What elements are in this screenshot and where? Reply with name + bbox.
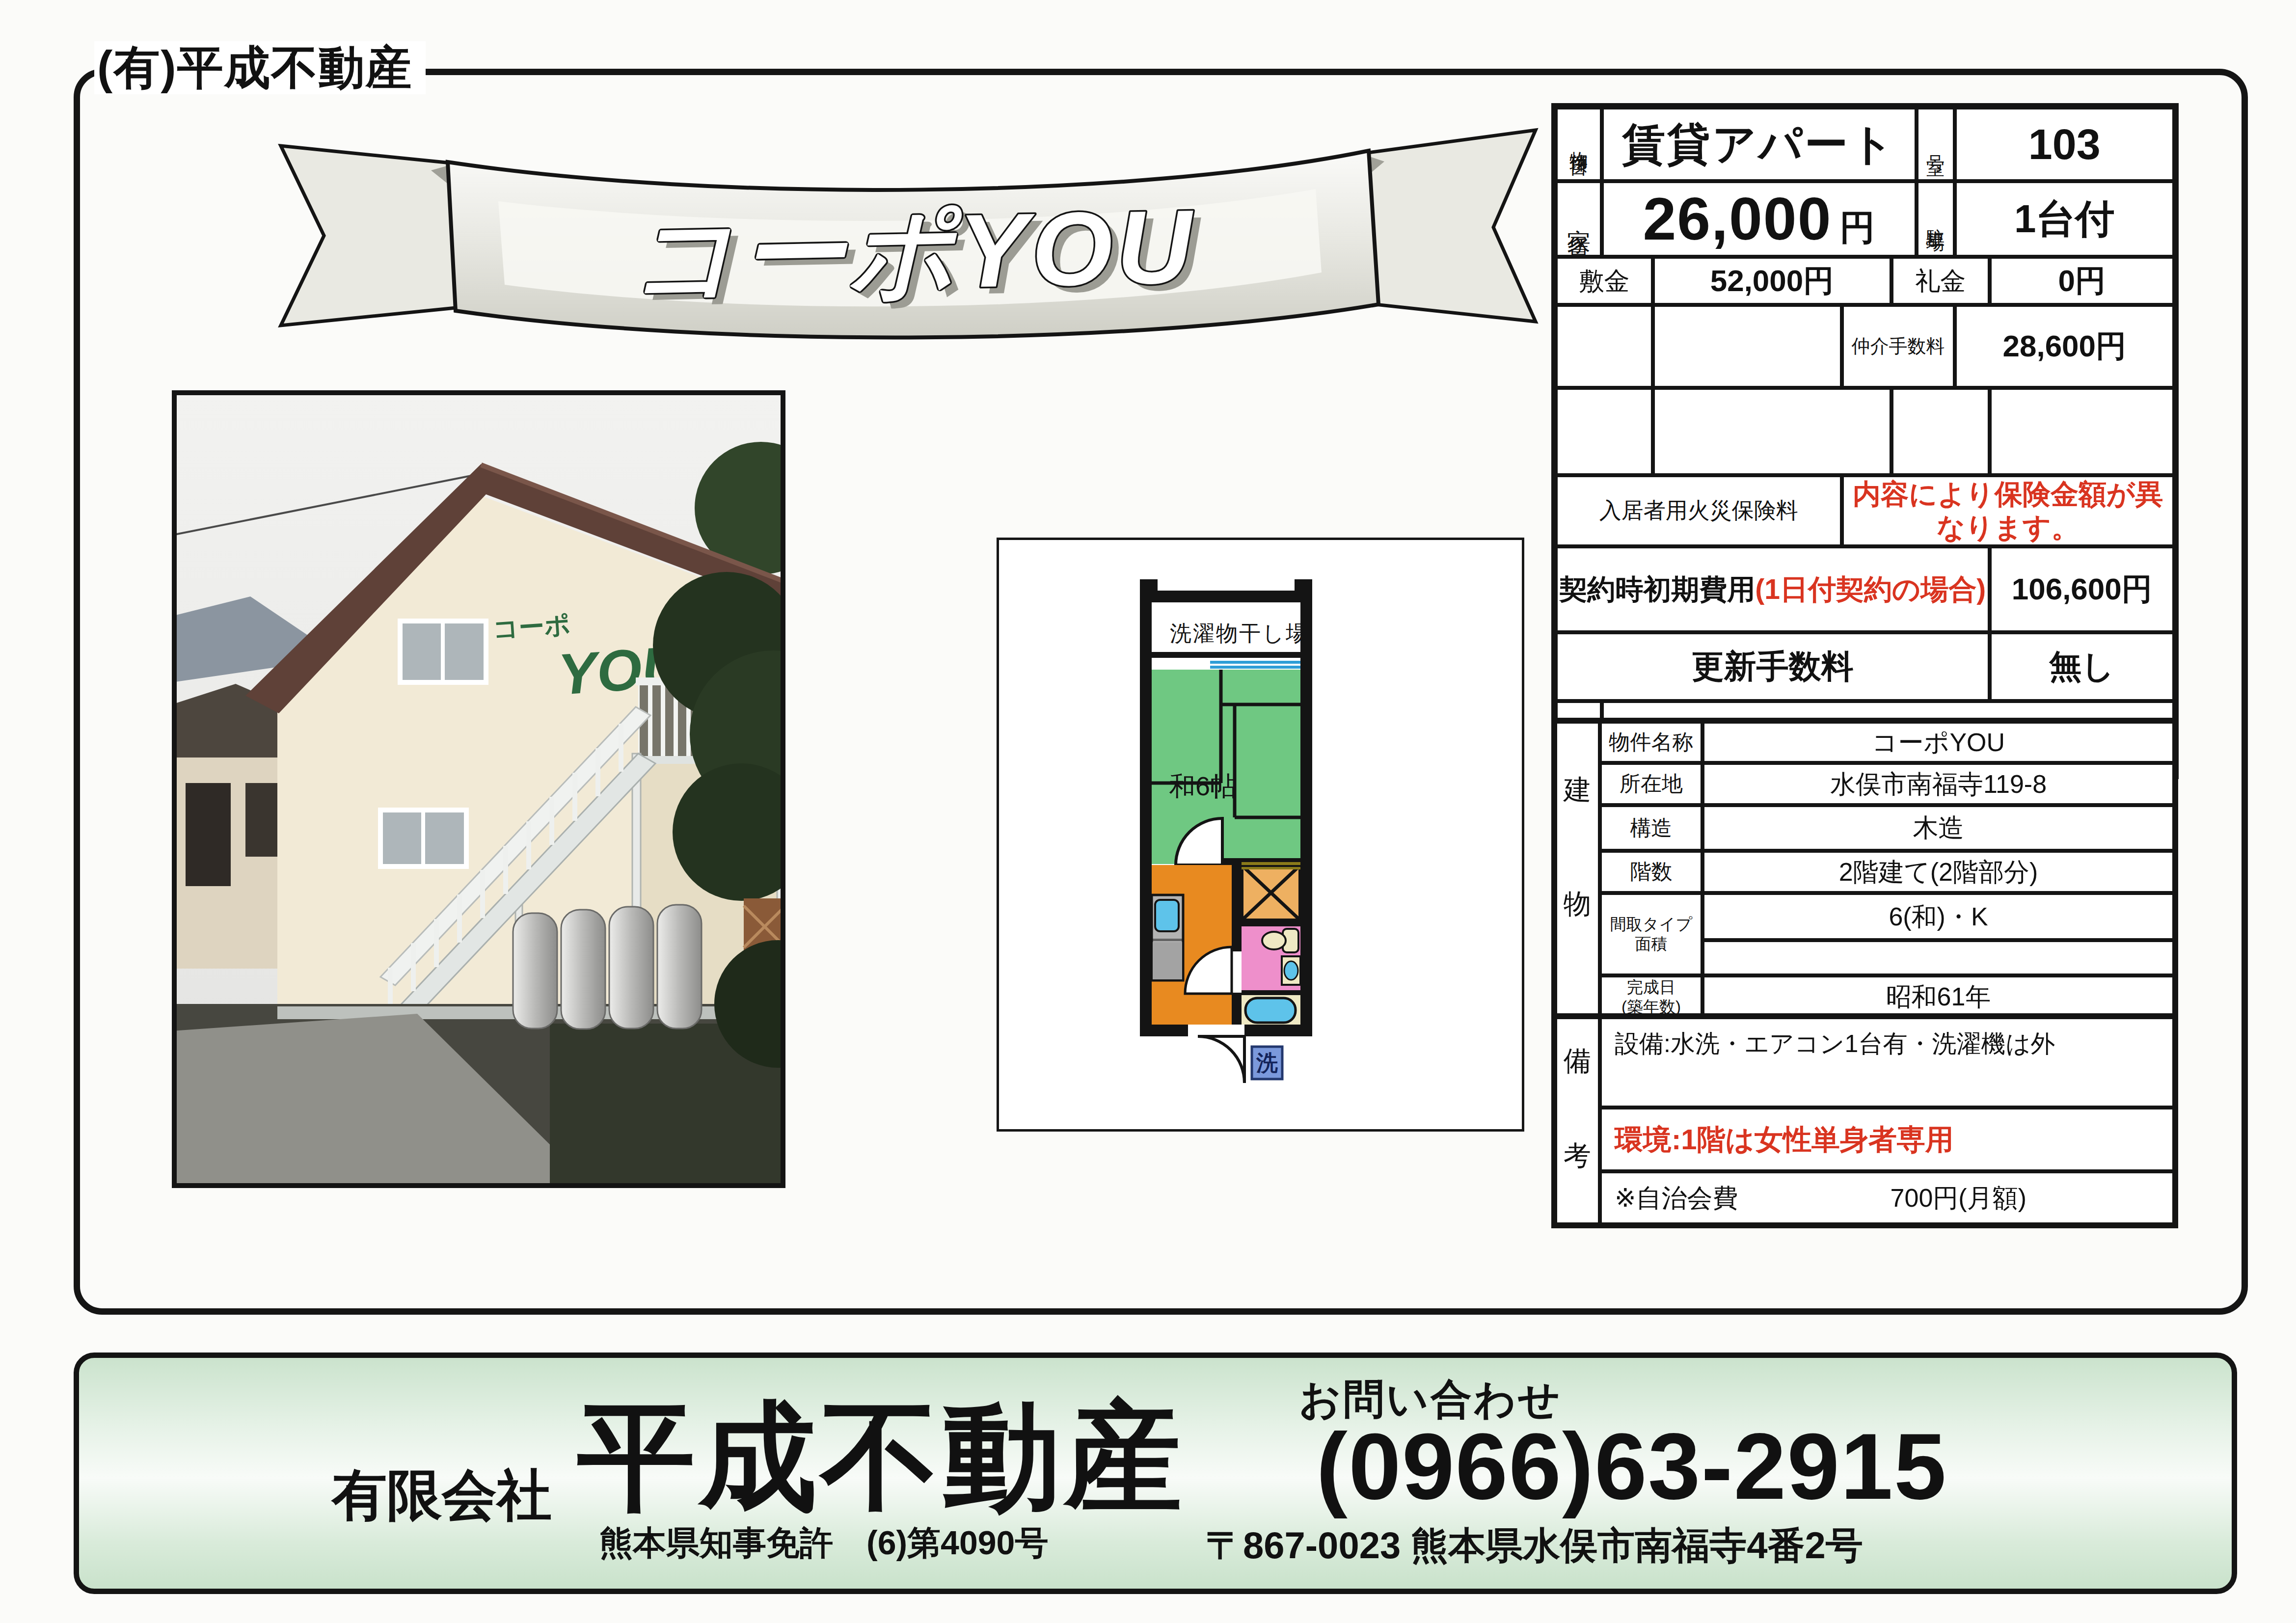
renewal-fee-label: 更新手数料 (1555, 632, 1990, 701)
ribbon-right-tail (1361, 130, 1536, 322)
room-no-label: 号室 (1926, 141, 1945, 147)
parking-label-cell: 駐車場 (1917, 181, 1955, 257)
empty-cell (1702, 940, 2175, 975)
parking-label: 駐車場 (1926, 214, 1945, 222)
building-row-value: 2階建て(2階部分) (1702, 851, 2175, 893)
title-ribbon: コーポYOU コーポYOU (275, 115, 1541, 349)
layout-label: 間取タイプ (1602, 915, 1701, 934)
item-label-cell: 物件項目 (1555, 107, 1602, 181)
building-row-label: 階数 (1600, 851, 1702, 893)
footer-license: 熊本県知事免許 (6)第4090号 (599, 1521, 1048, 1566)
remarks-section-label: 備考 (1564, 1027, 1592, 1213)
footer-company-prefix: 有限会社 (332, 1459, 552, 1533)
layout-value: 6(和)・K (1702, 893, 2175, 940)
flyer-page: (有)平成不動産 コーポYOU コーポYOU (0, 0, 2296, 1623)
initial-cost-label: 契約時初期費用 (1559, 573, 1755, 605)
building-row-label: 所在地 (1600, 763, 1702, 805)
building-row-label: 構造 (1600, 805, 1702, 851)
layout-label-cell: 間取タイプ 面積 (1600, 893, 1702, 975)
toilet-icon (1262, 932, 1286, 949)
deposit-value: 52,000円 (1653, 257, 1891, 305)
building-section-cell: 建物 (1554, 721, 1600, 1019)
building-row-label: 物件名称 (1600, 721, 1702, 763)
tatami-room (1152, 670, 1300, 864)
building-row-value: 木造 (1702, 805, 2175, 851)
fire-insurance-note: 内容により保険金額が異なります。 (1842, 475, 2176, 546)
room-no: 103 (1955, 107, 2176, 181)
layout-label2: 面積 (1602, 934, 1701, 954)
building-section-label: 建物 (1564, 754, 1592, 984)
building-table: 建物 物件名称 コーポYOU 所在地 水俣市南福寺119-8 構造 木造 階数 … (1551, 718, 2178, 1022)
sink-icon (1284, 961, 1298, 980)
building-row-value: コーポYOU (1702, 721, 2175, 763)
room-label: 和6帖 (1169, 771, 1237, 801)
broker-fee-value: 28,600円 (1955, 305, 2176, 388)
ribbon-left-tail (281, 146, 456, 325)
parking-value: 1台付 (1955, 181, 2176, 257)
empty-cell (1653, 388, 1891, 475)
renewal-fee-value: 無し (1990, 632, 2176, 701)
built-label-cell: 完成日 (築年数) (1600, 975, 1702, 1019)
entrance-door (1198, 1036, 1244, 1083)
washer-label: 洗 (1256, 1051, 1278, 1075)
footer-address: 〒867-0023 熊本県水俣市南福寺4番2号 (1206, 1521, 1863, 1571)
fire-insurance-label: 入居者用火災保険料 (1555, 475, 1842, 546)
rent-label-cell: 家賃 (1555, 181, 1602, 257)
rent-label: 家賃 (1567, 210, 1591, 226)
broker-fee-label: 仲介手数料 (1842, 305, 1955, 388)
item-value: 賃貸アパート (1602, 107, 1917, 181)
initial-cost-value: 106,600円 (1990, 546, 2176, 632)
remarks-fee-cell: ※自治会費700円(月額) (1600, 1171, 2175, 1225)
company-tag: (有)平成不動産 (94, 41, 426, 94)
remarks-fee-label: ※自治会費 (1615, 1184, 1738, 1212)
remarks-equipment: 設備:水洗・エアコン1台有・洗濯機は外 (1600, 1016, 2175, 1108)
remarks-environment: 環境:1階は女性単身者専用 (1600, 1108, 2175, 1171)
rent-unit: 円 (1840, 208, 1875, 247)
empty-cell (1990, 388, 2176, 475)
initial-cost-label-red: (1日付契約の場合) (1755, 573, 1986, 605)
footer-banner: 有限会社 平成不動産 熊本県知事免許 (6)第4090号 お問い合わせ (096… (74, 1352, 2237, 1594)
tub-icon (1245, 998, 1296, 1023)
room-no-label-cell: 号室 (1917, 107, 1955, 181)
empty-cell (1555, 305, 1653, 388)
empty-cell (1555, 388, 1653, 475)
banner-title: コーポYOU (628, 188, 1197, 316)
initial-cost-label-cell: 契約時初期費用(1日付契約の場合) (1555, 546, 1990, 632)
remarks-section-cell: 備考 (1554, 1016, 1600, 1225)
rent-cell: 26,000円 (1602, 181, 1917, 257)
empty-cell (1653, 305, 1842, 388)
deposit-label: 敷金 (1555, 257, 1653, 305)
built-label: 完成日 (1602, 977, 1701, 997)
built-value: 昭和61年 (1702, 975, 2175, 1019)
empty-cell (1891, 388, 1990, 475)
floorplan: 洗濯物干し場 和6帖 (999, 540, 1522, 1129)
item-label: 物件項目 (1569, 137, 1588, 149)
building-photo: コーポ YOU (172, 390, 785, 1188)
key-money-value: 0円 (1990, 257, 2176, 305)
building-row-value: 水俣市南福寺119-8 (1702, 763, 2175, 805)
wall-sign-kana: コーポ (492, 610, 571, 644)
footer-company-name: 平成不動産 (577, 1379, 1186, 1538)
remarks-fee-value: 700円(月額) (1891, 1184, 2026, 1212)
remarks-table: 備考 設備:水洗・エアコン1台有・洗濯機は外 環境:1階は女性単身者専用 ※自治… (1551, 1013, 2178, 1228)
rent-value: 26,000 (1643, 186, 1832, 252)
listing-table: 物件項目 賃貸アパート 号室 103 家賃 26,000円 駐車場 1台付 敷金… (1551, 103, 2179, 779)
kitchen-sink-icon (1155, 900, 1179, 931)
footer-phone: (0966)63-2915 (1316, 1412, 1947, 1520)
floorplan-box: 洗濯物干し場 和6帖 (997, 538, 1524, 1132)
key-money-label: 礼金 (1891, 257, 1990, 305)
balcony-label: 洗濯物干し場 (1170, 621, 1309, 645)
